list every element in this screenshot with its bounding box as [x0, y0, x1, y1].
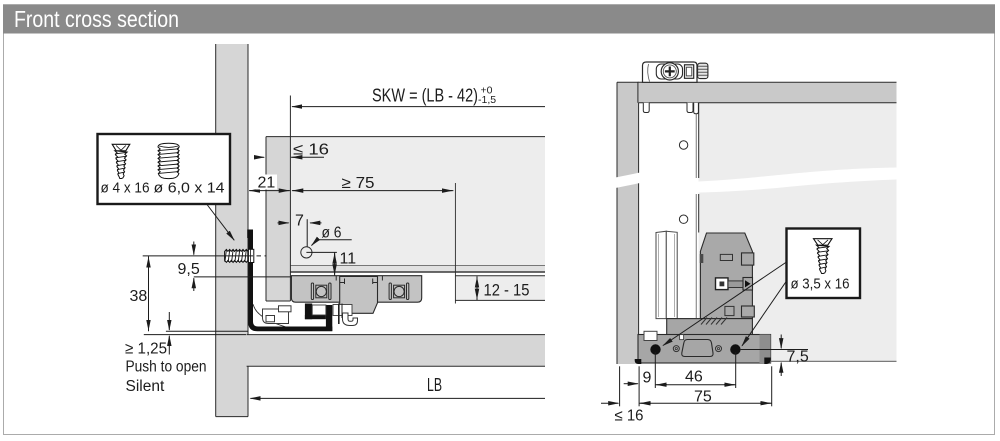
svg-text:46: 46 [685, 369, 703, 386]
svg-text:7,5: 7,5 [787, 349, 809, 366]
svg-text:SKW = (LB - 42): SKW = (LB - 42) [372, 86, 478, 106]
svg-text:21: 21 [258, 175, 276, 192]
svg-text:-1,5: -1,5 [478, 94, 496, 106]
svg-text:ø 3,5 x 16: ø 3,5 x 16 [791, 276, 850, 293]
svg-text:ø 6: ø 6 [322, 225, 342, 242]
svg-text:38: 38 [130, 288, 148, 305]
svg-text:≤ 16: ≤ 16 [615, 408, 644, 425]
svg-text:ø 6,0 x 14: ø 6,0 x 14 [154, 179, 225, 196]
svg-text:Front cross section: Front cross section [14, 6, 179, 32]
svg-text:75: 75 [694, 389, 712, 406]
svg-text:≥ 75: ≥ 75 [342, 175, 375, 192]
svg-text:11: 11 [340, 251, 357, 268]
svg-text:≥ 1,25: ≥ 1,25 [125, 341, 167, 358]
svg-text:7: 7 [295, 213, 304, 230]
svg-text:9: 9 [643, 370, 652, 387]
svg-text:12 - 15: 12 - 15 [484, 281, 530, 300]
svg-text:≤ 16: ≤ 16 [293, 142, 329, 159]
svg-text:Push to open: Push to open [126, 359, 207, 376]
svg-text:Silent: Silent [126, 378, 165, 395]
svg-text:LB: LB [427, 375, 442, 395]
svg-text:ø 4 x 16: ø 4 x 16 [101, 179, 150, 196]
svg-text:9,5: 9,5 [178, 261, 200, 278]
